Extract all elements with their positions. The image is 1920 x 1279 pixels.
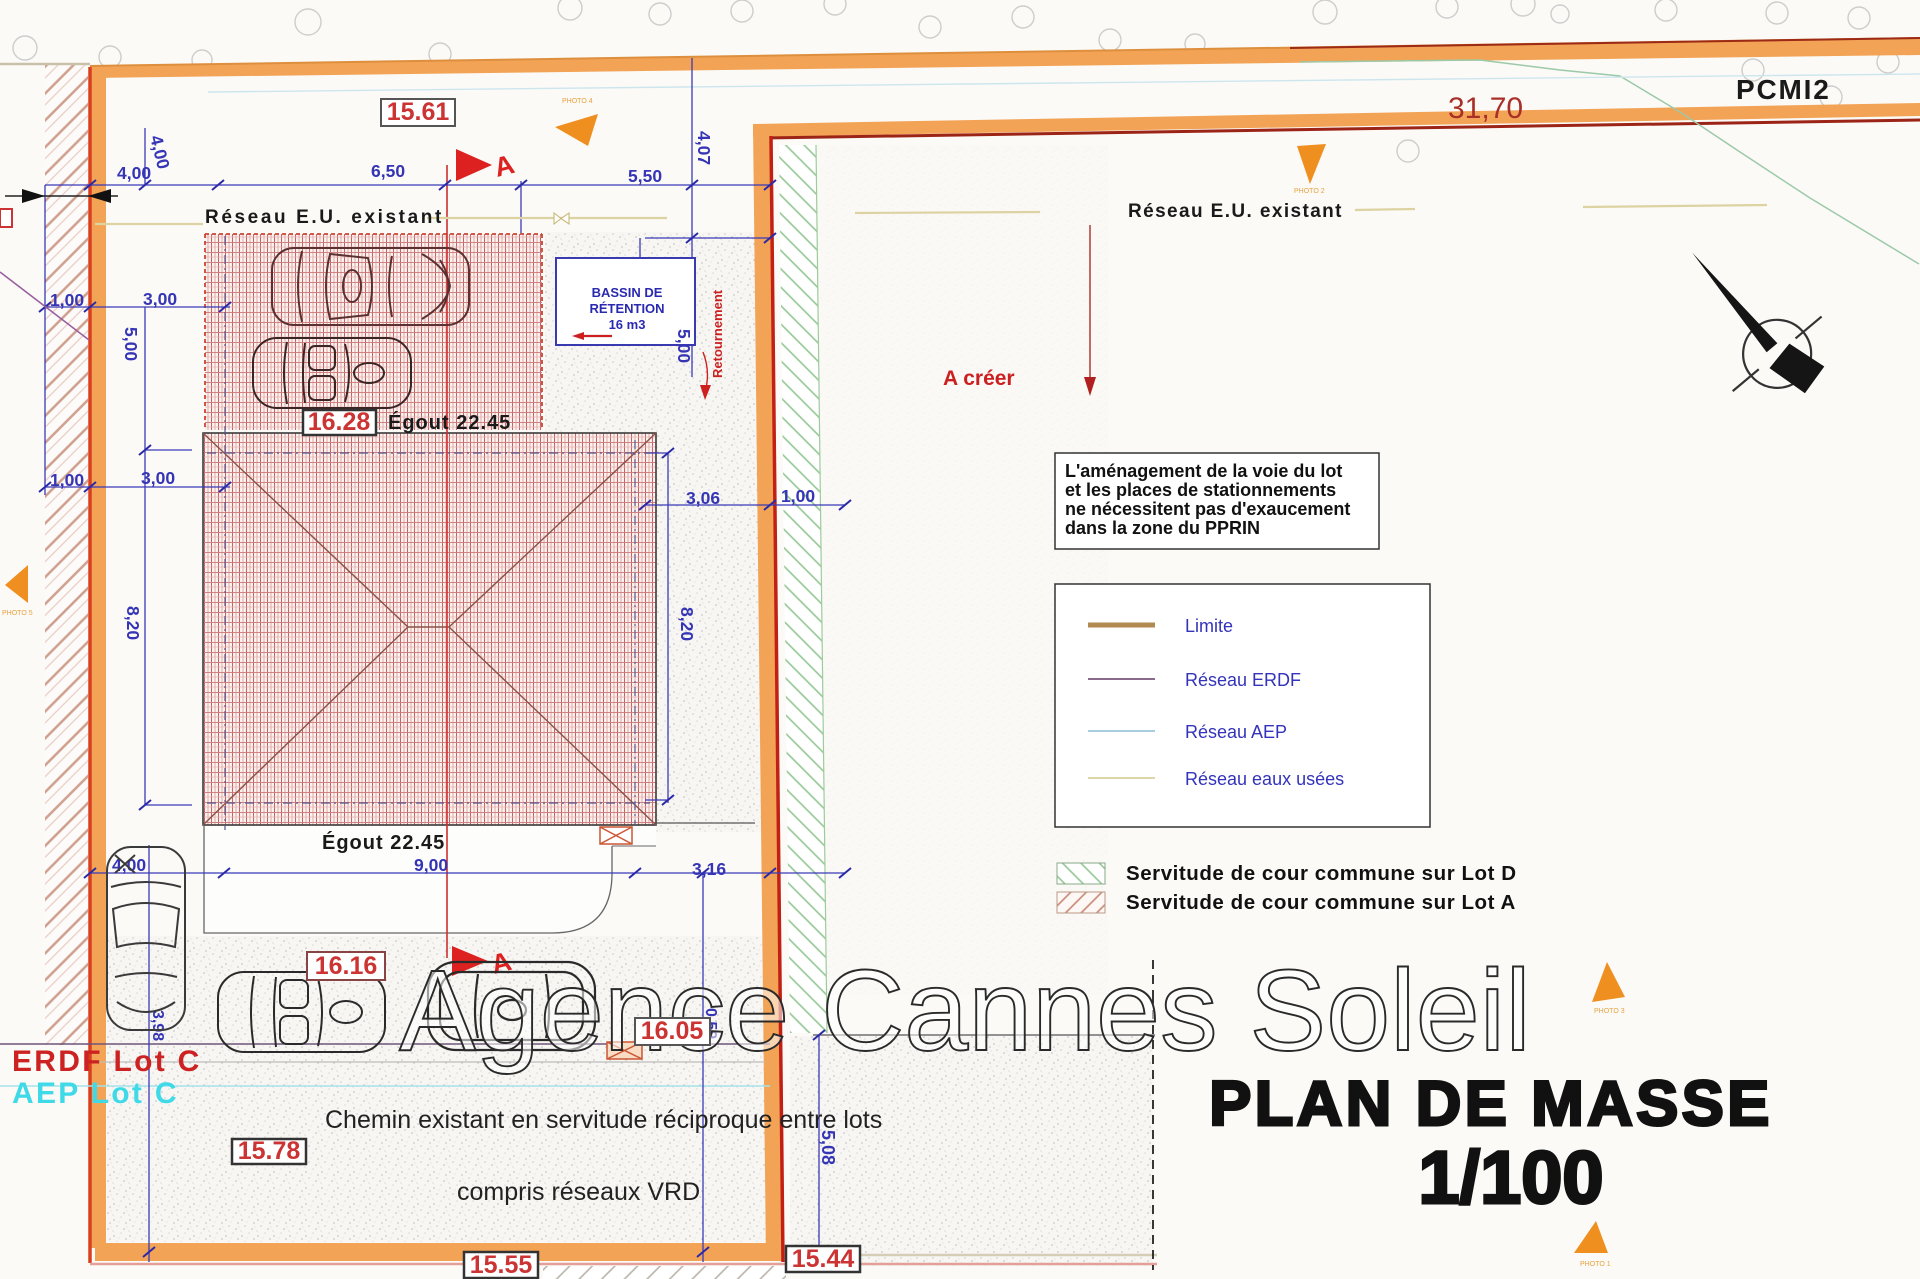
- svg-text:PHOTO 2: PHOTO 2: [1294, 188, 1325, 195]
- svg-text:BASSIN DE: BASSIN DE: [592, 285, 663, 300]
- svg-text:3,16: 3,16: [692, 859, 726, 879]
- svg-text:4,00: 4,00: [117, 163, 151, 183]
- svg-text:RÉTENTION: RÉTENTION: [589, 301, 664, 316]
- svg-text:Réseau E.U. existant: Réseau E.U. existant: [205, 207, 444, 228]
- svg-text:ERDF Lot C: ERDF Lot C: [12, 1045, 202, 1078]
- svg-text:15.55: 15.55: [470, 1251, 533, 1279]
- svg-text:5,50: 5,50: [628, 166, 662, 186]
- svg-text:Égout 22.45: Égout 22.45: [322, 831, 445, 854]
- svg-text:9,00: 9,00: [414, 855, 448, 875]
- svg-text:5,00: 5,00: [674, 329, 694, 363]
- svg-text:1,00: 1,00: [50, 470, 84, 490]
- svg-text:8,20: 8,20: [123, 606, 143, 640]
- svg-text:PHOTO 1: PHOTO 1: [1580, 1261, 1611, 1268]
- svg-text:Égout 22.45: Égout 22.45: [388, 411, 511, 434]
- svg-text:6,50: 6,50: [371, 161, 405, 181]
- svg-text:5,00: 5,00: [121, 327, 141, 361]
- svg-text:Retournement: Retournement: [710, 289, 725, 378]
- svg-text:PCMI2: PCMI2: [1736, 74, 1831, 105]
- svg-text:PHOTO 4: PHOTO 4: [562, 98, 593, 105]
- svg-text:3,00: 3,00: [141, 468, 175, 488]
- svg-text:16.05: 16.05: [641, 1017, 704, 1045]
- svg-text:A créer: A créer: [943, 367, 1015, 390]
- svg-text:3,98: 3,98: [149, 1010, 166, 1041]
- svg-text:1,00: 1,00: [50, 290, 84, 310]
- svg-text:Réseau E.U. existant: Réseau E.U. existant: [1128, 201, 1343, 222]
- svg-text:15.44: 15.44: [792, 1245, 855, 1273]
- svg-text:et les places de stationnement: et les places de stationnements: [1065, 480, 1336, 500]
- svg-text:PHOTO 3: PHOTO 3: [1594, 1008, 1625, 1015]
- svg-text:3,06: 3,06: [686, 488, 720, 508]
- svg-text:ne nécessitent pas d'exaucemen: ne nécessitent pas d'exaucement: [1065, 499, 1350, 519]
- svg-text:PLAN DE MASSE: PLAN DE MASSE: [1209, 1069, 1773, 1139]
- svg-text:compris réseaux VRD: compris réseaux VRD: [457, 1178, 700, 1206]
- svg-text:L'aménagement de la voie du lo: L'aménagement de la voie du lot: [1065, 461, 1342, 481]
- svg-text:31,70: 31,70: [1448, 92, 1523, 125]
- svg-text:16.16: 16.16: [315, 952, 378, 980]
- svg-text:Agence Cannes Soleil: Agence Cannes Soleil: [399, 947, 1531, 1075]
- svg-text:5,08: 5,08: [818, 1130, 838, 1165]
- svg-text:1,00: 1,00: [781, 486, 815, 506]
- svg-text:Réseau eaux usées: Réseau eaux usées: [1185, 769, 1344, 789]
- svg-text:15.61: 15.61: [387, 98, 450, 126]
- svg-text:1/100: 1/100: [1418, 1136, 1603, 1219]
- svg-text:16.28: 16.28: [308, 408, 371, 436]
- svg-text:Servitude de cour commune sur: Servitude de cour commune sur Lot D: [1126, 862, 1517, 885]
- svg-text:8,20: 8,20: [677, 607, 697, 641]
- svg-text:dans la zone du PPRIN: dans la zone du PPRIN: [1065, 518, 1260, 538]
- svg-text:PHOTO 5: PHOTO 5: [2, 610, 33, 617]
- svg-text:3,00: 3,00: [143, 289, 177, 309]
- svg-text:Réseau ERDF: Réseau ERDF: [1185, 670, 1301, 690]
- svg-text:Chemin existant en servitude r: Chemin existant en servitude réciproque …: [325, 1106, 882, 1134]
- svg-text:Servitude de cour commune sur: Servitude de cour commune sur Lot A: [1126, 891, 1516, 914]
- svg-text:15.78: 15.78: [238, 1137, 301, 1165]
- svg-text:AEP Lot C: AEP Lot C: [12, 1077, 179, 1110]
- svg-text:Réseau AEP: Réseau AEP: [1185, 722, 1287, 742]
- svg-text:Limite: Limite: [1185, 616, 1233, 636]
- svg-text:4,07: 4,07: [694, 131, 714, 165]
- svg-text:16 m3: 16 m3: [609, 317, 646, 332]
